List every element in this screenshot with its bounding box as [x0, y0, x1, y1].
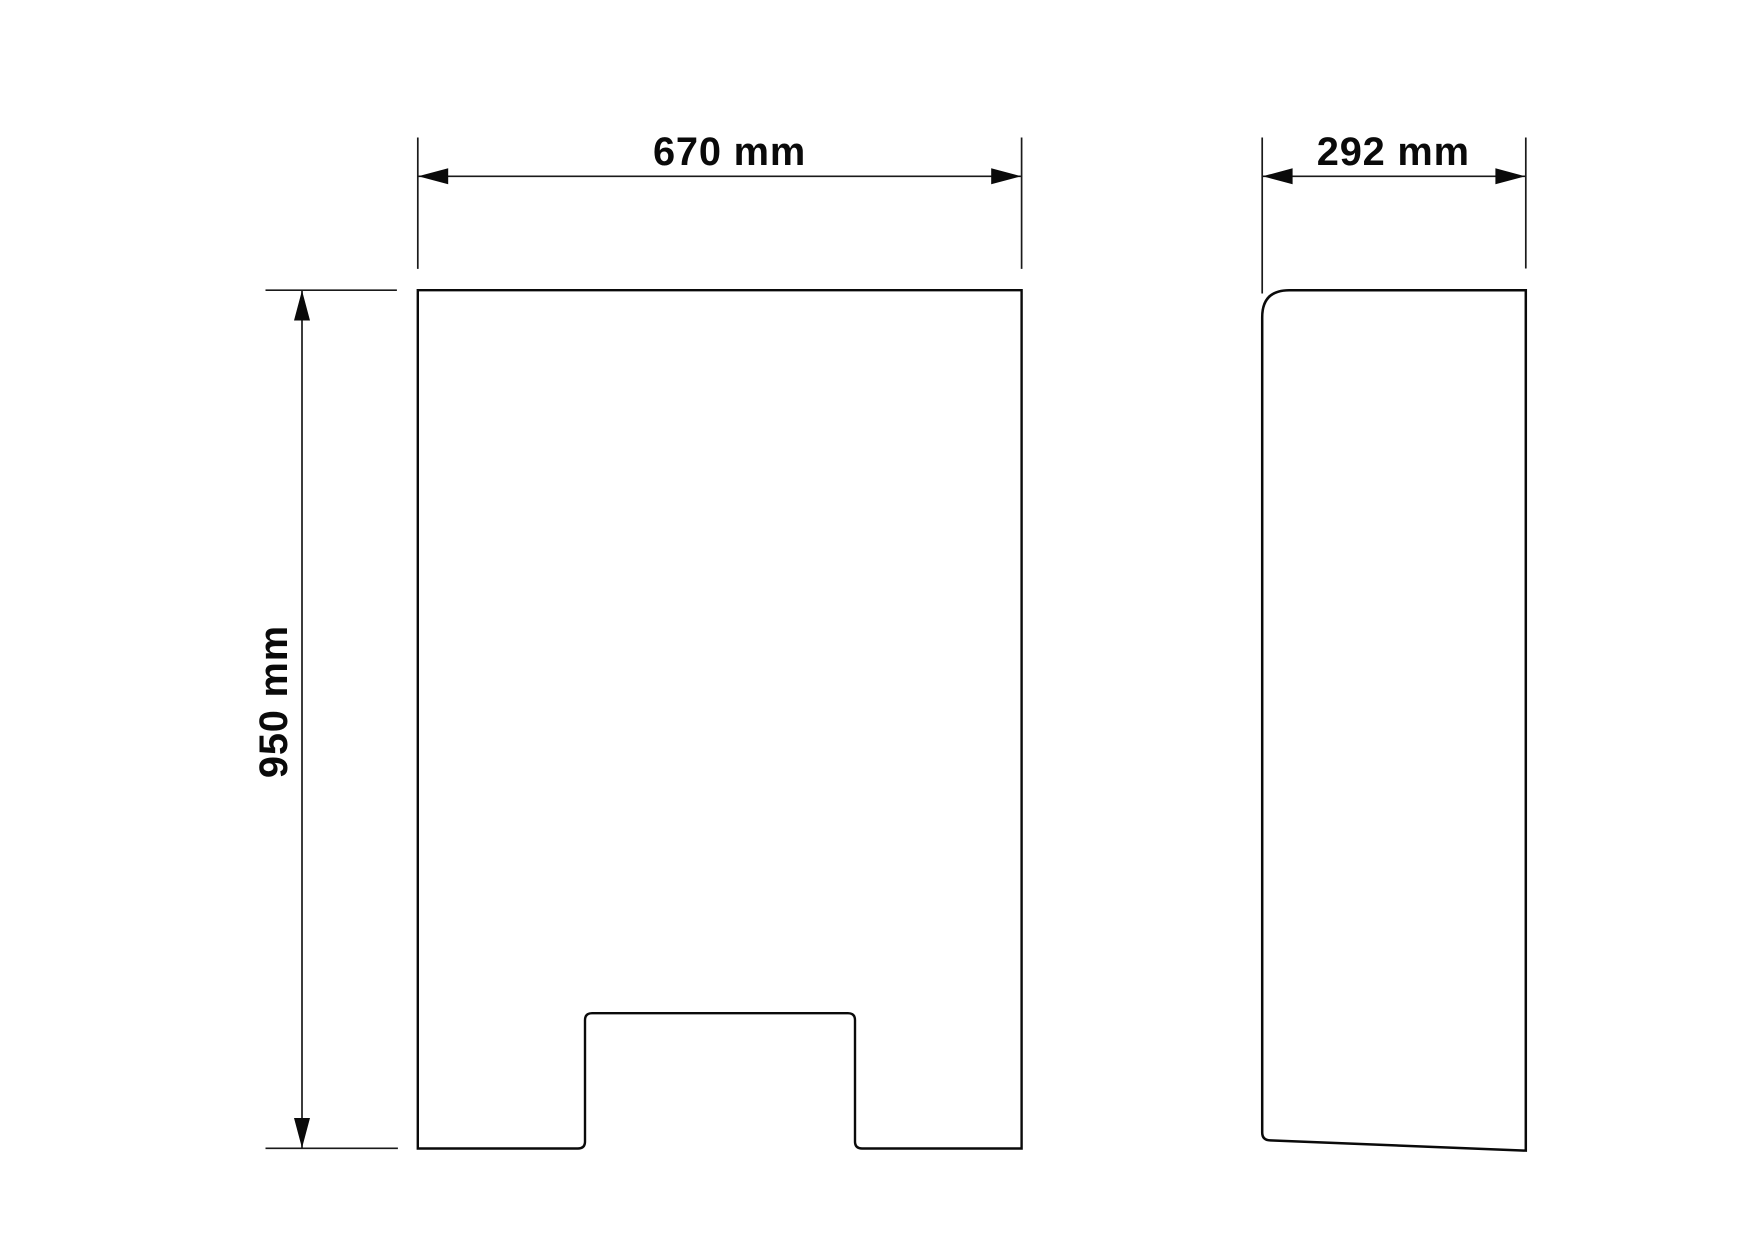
svg-text:670 mm: 670 mm: [653, 130, 806, 174]
svg-text:950 mm: 950 mm: [252, 625, 296, 778]
svg-text:292 mm: 292 mm: [1317, 130, 1470, 174]
